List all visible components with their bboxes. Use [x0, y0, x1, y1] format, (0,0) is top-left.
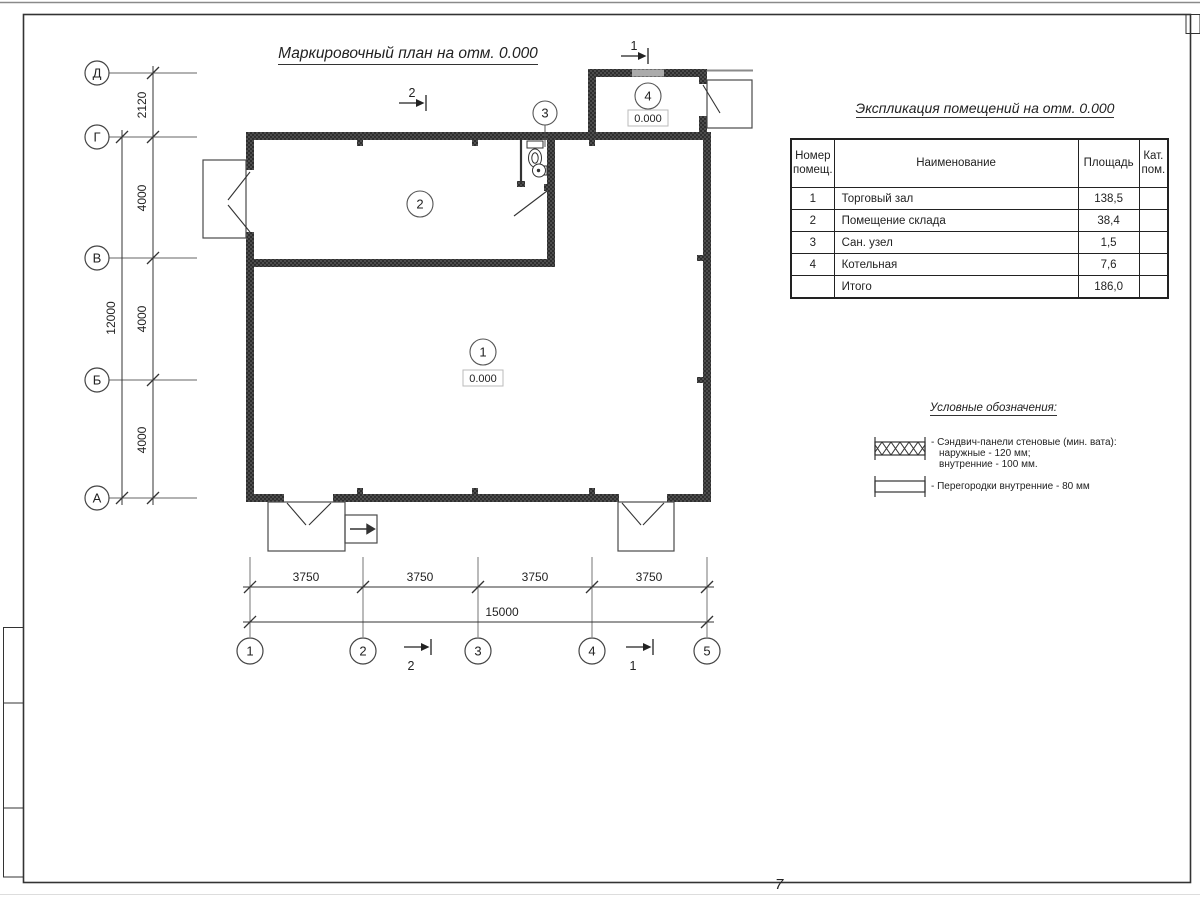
axis-col-2: 2 [359, 644, 366, 659]
sink-icon [533, 164, 548, 177]
room-4-number: 4 [644, 89, 651, 104]
axis-col-4: 4 [588, 644, 595, 659]
explication-title: Экспликация помещений на отм. 0.000 [810, 100, 1160, 116]
room-labels: 1 0.000 2 3 4 0.000 [407, 83, 668, 386]
section-1-bottom-label: 1 [630, 659, 637, 673]
room-1-elevation: 0.000 [469, 373, 497, 385]
explication-table: Номерпомещ. Наименование Площадь Кат.пом… [790, 138, 1169, 299]
left-axes: Д Г В Б А 2120 4000 4000 4000 12000 [85, 61, 197, 510]
section-1-top-label: 1 [631, 39, 638, 53]
table-row: 3 Сан. узел 1,5 [791, 232, 1168, 254]
dim-3750-b: 3750 [407, 570, 434, 584]
legend-item-sandwich-panels: - Сэндвич-панели стеновые (мин. вата): н… [931, 437, 1117, 470]
dim-2120: 2120 [135, 91, 149, 118]
dim-12000: 12000 [104, 301, 118, 335]
window [632, 70, 664, 77]
table-row: 1 Торговый зал 138,5 [791, 188, 1168, 210]
section-2-bottom-label: 2 [408, 659, 415, 673]
dim-4000-b: 4000 [135, 305, 149, 332]
plan-title: Маркировочный план на отм. 0.000 [270, 45, 546, 63]
exterior-walls [246, 69, 711, 502]
legend-title: Условные обозначения: [930, 402, 1057, 414]
dim-3750-a: 3750 [293, 570, 320, 584]
legend-partition-symbol [875, 476, 925, 497]
entrance-arrow-icon [350, 525, 375, 534]
table-total-row: Итого 186,0 [791, 276, 1168, 299]
section-2-top-label: 2 [409, 86, 416, 100]
room-3-number: 3 [541, 106, 548, 121]
legend-sandwich-panel-symbol [875, 437, 925, 460]
col-header-area: Площадь [1078, 139, 1139, 188]
dim-3750-d: 3750 [636, 570, 663, 584]
axis-row-V: В [93, 251, 102, 266]
col-header-number: Номерпомещ. [791, 139, 834, 188]
room-1-number: 1 [479, 345, 486, 360]
axis-row-D: Д [93, 66, 102, 81]
dim-3750-c: 3750 [522, 570, 549, 584]
dim-4000-a: 4000 [135, 184, 149, 211]
axis-row-B: Б [93, 373, 102, 388]
drawing-sheet: 1 0.000 2 3 4 0.000 [0, 0, 1200, 900]
axis-row-A: А [93, 491, 102, 506]
table-header-row: Номерпомещ. Наименование Площадь Кат.пом… [791, 139, 1168, 188]
dim-15000: 15000 [485, 605, 519, 619]
axis-row-G: Г [93, 130, 100, 145]
table-row: 2 Помещение склада 38,4 [791, 210, 1168, 232]
col-header-category: Кат.пом. [1139, 139, 1168, 188]
axis-col-5: 5 [703, 644, 710, 659]
col-header-name: Наименование [834, 139, 1078, 188]
table-row: 4 Котельная 7,6 [791, 254, 1168, 276]
legend-item-partitions: - Перегородки внутренние - 80 мм [931, 481, 1090, 492]
room-2-number: 2 [416, 197, 423, 212]
axis-col-3: 3 [474, 644, 481, 659]
page-number: 7 [775, 876, 783, 893]
room-4-elevation: 0.000 [634, 113, 662, 125]
door-leaves [228, 85, 720, 525]
dim-4000-c: 4000 [135, 426, 149, 453]
axis-col-1: 1 [246, 644, 253, 659]
toilet-icon [527, 141, 543, 167]
